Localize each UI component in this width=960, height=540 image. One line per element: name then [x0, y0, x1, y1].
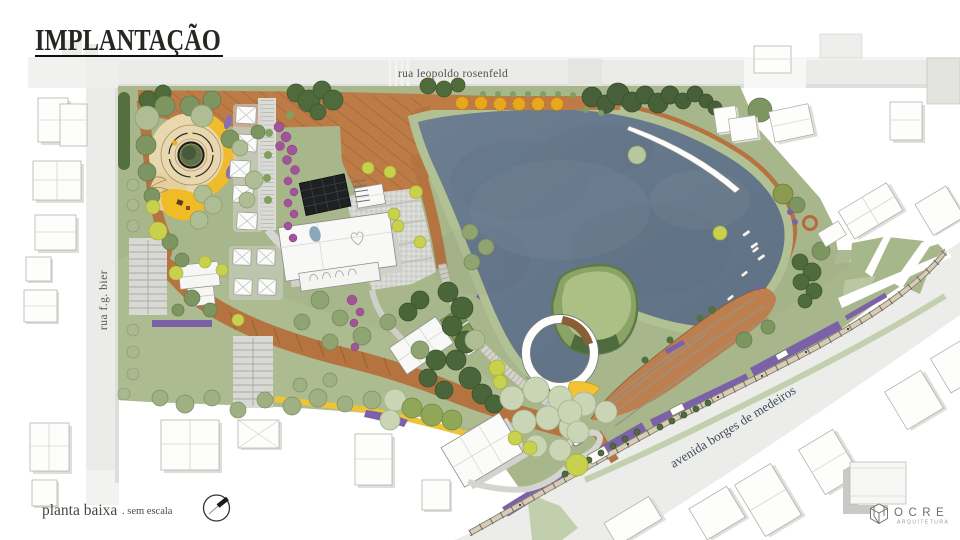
svg-text:ARQUITETURA: ARQUITETURA	[897, 520, 949, 526]
svg-text:planta baixa: planta baixa	[42, 502, 117, 519]
svg-text:. sem escala: . sem escala	[122, 506, 173, 517]
svg-text:IMPLANTAÇÃO: IMPLANTAÇÃO	[35, 23, 221, 57]
svg-text:rua leopoldo rosenfeld: rua leopoldo rosenfeld	[398, 68, 508, 80]
svg-text:rua f.g. bier: rua f.g. bier	[98, 270, 110, 330]
svg-text:OCRE: OCRE	[894, 507, 949, 519]
